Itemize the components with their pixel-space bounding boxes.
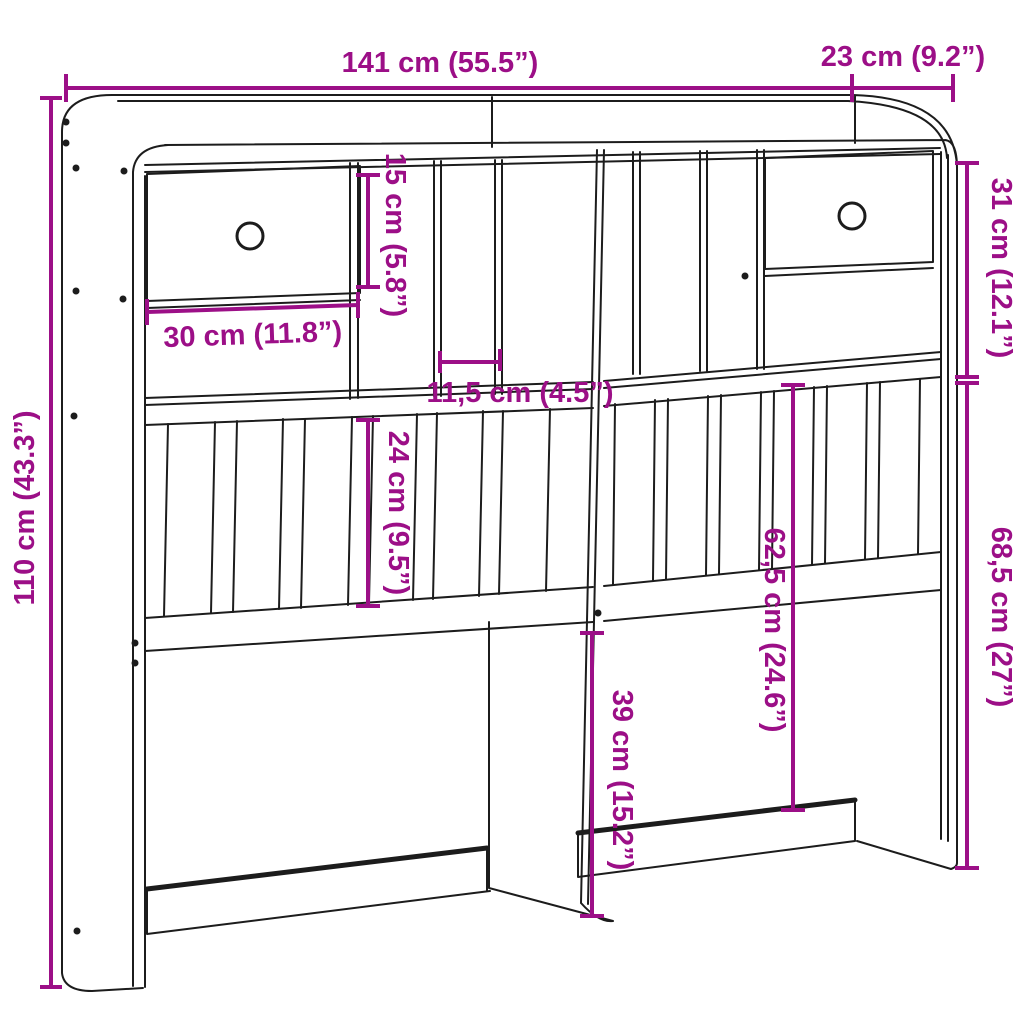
dim-label-lower-opening-height: 39 cm (15.2”): [606, 690, 638, 871]
dim-label-top-depth: 23 cm (9.2”): [821, 41, 985, 73]
dim-label-slat-panel-height: 24 cm (9.5”): [382, 431, 414, 595]
right-drawer-knob: [839, 203, 865, 229]
dim-label-drawer-shelf-width: 30 cm (11.8”): [163, 316, 343, 354]
screw-hole-dot: [63, 119, 70, 126]
screw-hole-dot: [74, 928, 81, 935]
left-side-panel: [62, 95, 168, 991]
dim-label-right-opening-height: 62,5 cm (24.6”): [758, 528, 790, 733]
left-drawer-knob: [237, 223, 263, 249]
right-side-panel: [857, 152, 957, 869]
dim-line-right-section-height: [955, 383, 979, 868]
left-drawer-shelf-board: [147, 163, 360, 399]
bottom-rail-left-top-edge: [147, 848, 487, 889]
right-cubby-dividers: [633, 150, 764, 374]
screw-hole-dot: [71, 413, 78, 420]
screw-hole-dot: [132, 660, 139, 667]
dim-line-overall-height: [40, 98, 62, 987]
screw-hole-dot: [121, 168, 128, 175]
dim-label-right-section-height: 68,5 cm (27”): [985, 527, 1017, 708]
top-shelf-board: [145, 148, 940, 172]
screw-hole-dot: [63, 140, 70, 147]
furniture-outline: [62, 95, 957, 991]
slat-rails: [145, 377, 941, 651]
screw-hole-dot: [132, 640, 139, 647]
screw-hole-dot: [120, 296, 127, 303]
dim-label-upper-section-height: 31 cm (12.1”): [985, 178, 1017, 359]
dim-line-upper-section-height: [955, 163, 979, 377]
center-divider: [489, 150, 613, 921]
right-drawer-shelf-board: [765, 268, 933, 276]
screw-hole-dot: [595, 610, 602, 617]
screw-hole-dot: [73, 165, 80, 172]
dim-line-cubby-spacing: [440, 349, 500, 373]
dim-line-slat-panel-height: [356, 420, 380, 606]
dim-label-overall-width: 141 cm (55.5”): [342, 47, 539, 79]
screw-hole-dot: [742, 273, 749, 280]
screw-hole-dot: [73, 288, 80, 295]
headboard-dimension-diagram: 141 cm (55.5”) 23 cm (9.2”) 110 cm (43.3…: [0, 0, 1024, 1024]
bottom-rail-left: [147, 848, 490, 934]
dim-label-overall-height: 110 cm (43.3”): [9, 410, 41, 605]
slat-panel-left: [164, 409, 550, 616]
dim-label-upper-cubby-height: 15 cm (5.8”): [379, 153, 411, 317]
dim-label-cubby-spacing: 11,5 cm (4.5”): [427, 377, 614, 409]
dim-line-top-depth: [852, 74, 953, 102]
